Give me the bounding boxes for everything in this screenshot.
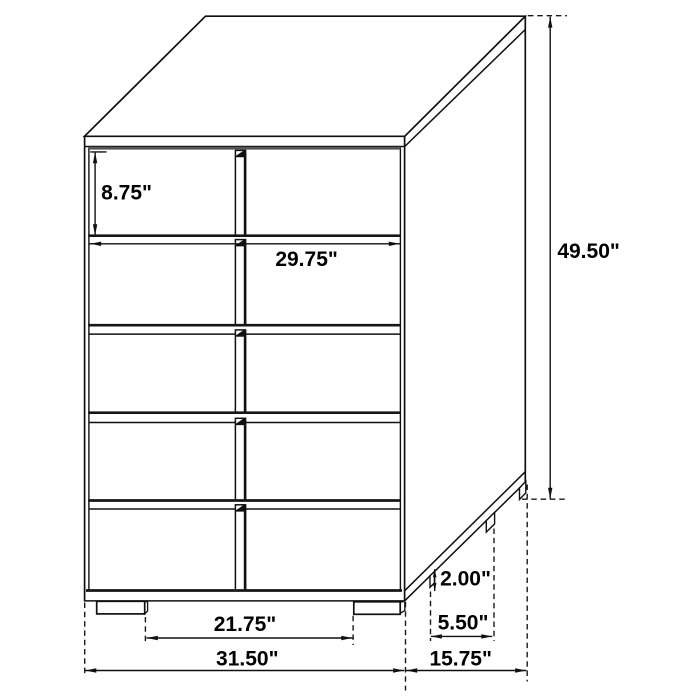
svg-text:8.75": 8.75" [101,181,152,204]
svg-text:29.75": 29.75" [275,248,338,271]
svg-text:31.50": 31.50" [216,648,279,671]
svg-text:5.50": 5.50" [438,612,489,635]
svg-text:2.00": 2.00" [440,568,491,591]
svg-text:21.75": 21.75" [214,613,277,636]
svg-text:15.75": 15.75" [429,648,492,671]
svg-text:49.50": 49.50" [557,240,620,263]
